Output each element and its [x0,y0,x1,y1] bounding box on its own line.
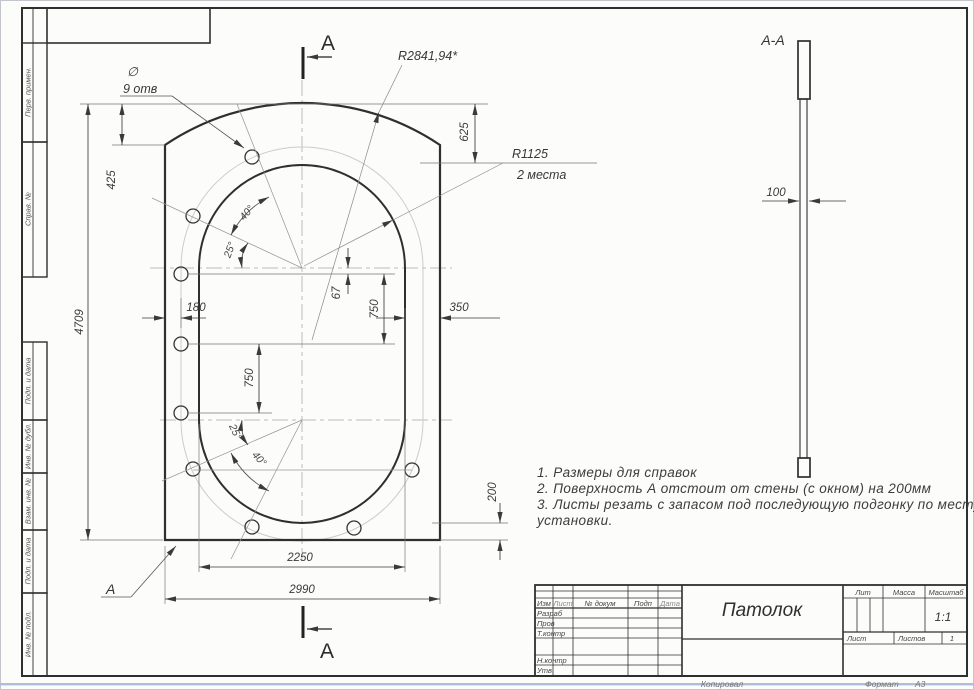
tb-lit-label: Лит [854,588,871,597]
tb-col-list: Лист [552,599,572,608]
tb-col-ndokum: № докум [585,599,616,608]
tb-row-razrab: Разраб [537,609,563,618]
dim-180: 180 [186,302,206,314]
tb-scale-label: Масштаб [928,588,964,597]
dim-200: 200 [487,482,499,503]
dim-4709: 4709 [74,309,86,335]
dim-625: 625 [459,122,471,142]
surface-letter: А [105,581,115,597]
format-label: Формат [865,679,899,689]
dim-67: 67 [331,286,343,299]
margin-label-perv-primen: Перв. примен. [24,67,33,117]
section-letter-bottom: А [320,640,334,663]
note-line-4: установки. [536,513,613,528]
tb-row-nkontr: Н.контр [537,656,567,665]
tb-sheets-label: Листов [897,634,925,643]
copied-label: Копировал [701,679,743,689]
dim-425: 425 [106,170,118,190]
r-inner-label: R1125 [512,147,548,161]
margin-label-inv-podl: Инв. № подл. [24,611,33,658]
diameter-symbol: ∅ [127,65,139,79]
note-line-2: 2. Поверхность А отстоит от стены (с окн… [536,481,931,496]
dim-350: 350 [449,302,469,314]
tb-sheets-count: 1 [950,634,954,643]
tb-col-data: Дата [659,599,680,608]
section-letter-top: А [321,32,335,55]
tb-row-prov: Пров [537,619,555,628]
section-view-title: А-А [760,32,784,48]
margin-label-sprav-no: Справ. № [24,192,33,226]
dim-100: 100 [766,187,786,199]
r-outer-label: R2841,94* [398,49,458,63]
margin-label-podp-data-2: Подп. и дата [24,538,33,585]
margin-label-vzam-inv: Взам. инв. № [24,478,33,524]
note-line-3: 3. Листы резать с запасом под последующу… [537,497,974,512]
holes-count-label: 9 отв [123,82,158,96]
note-line-1: 1. Размеры для справок [537,465,697,480]
tb-scale-value: 1:1 [935,610,952,624]
dim-750-lower: 750 [244,368,256,388]
dim-2250: 2250 [286,552,313,564]
drawing-sheet: Перв. примен. Справ. № Подп. и дата Инв.… [0,0,974,690]
margin-label-inv-dubl: Инв. № дубл. [24,423,33,469]
drawing-canvas: Перв. примен. Справ. № Подп. и дата Инв.… [0,0,974,690]
dim-2990: 2990 [288,584,315,596]
tb-mass-label: Масса [893,588,915,597]
format-value: А3 [914,679,926,689]
tb-sheet-label: Лист [846,634,866,643]
r-inner-qty-label: 2 места [516,168,566,182]
tb-col-podp: Подп [634,599,652,608]
part-title: Патолок [722,600,803,621]
tb-row-tkontr: Т.контр [537,629,565,638]
tb-row-utv: Утв [536,666,552,675]
scan-edge-line [0,683,974,685]
margin-label-podp-data-1: Подп. и дата [24,358,33,405]
tb-col-izm: Изм [537,599,551,608]
dim-750-upper: 750 [369,299,381,319]
